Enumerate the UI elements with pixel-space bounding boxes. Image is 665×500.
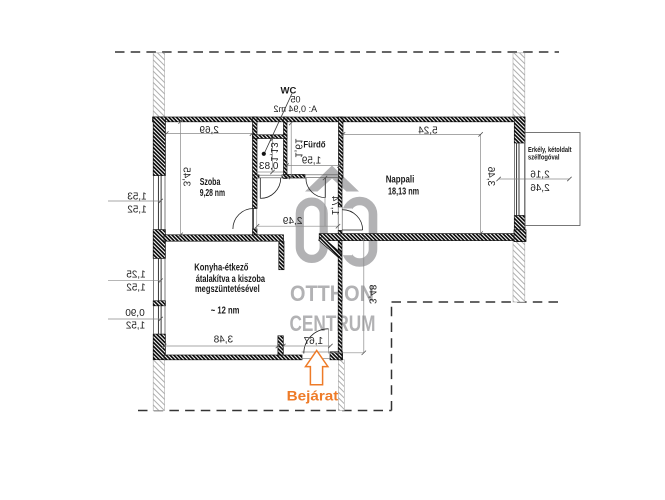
svg-text:1,52: 1,52 [127, 204, 147, 215]
svg-text:1,25: 1,25 [126, 270, 146, 281]
svg-text:3,45: 3,45 [181, 167, 192, 187]
svg-text:0,83: 0,83 [259, 161, 279, 172]
svg-text:2,49: 2,49 [282, 216, 302, 227]
svg-text:~ 12 nm: ~ 12 nm [211, 306, 240, 317]
svg-text:5,24: 5,24 [418, 125, 438, 136]
svg-text:1,61: 1,61 [292, 138, 303, 158]
svg-text:3,46: 3,46 [485, 166, 496, 186]
svg-text:Fürdő: Fürdő [303, 139, 326, 149]
svg-text:1,13: 1,13 [268, 142, 279, 162]
svg-text:Bejárat: Bejárat [287, 389, 339, 404]
svg-text:CENTRUM: CENTRUM [290, 311, 376, 336]
svg-text:1,67: 1,67 [303, 336, 323, 347]
svg-text:1,53: 1,53 [127, 191, 147, 202]
svg-text:3,48: 3,48 [366, 284, 377, 304]
svg-text:szélfogóval: szélfogóval [528, 153, 560, 162]
svg-text:Konyha-étkező: Konyha-étkező [194, 263, 248, 274]
svg-text:3,48: 3,48 [213, 334, 233, 345]
svg-text:0,90: 0,90 [125, 308, 145, 319]
svg-text:Szoba: Szoba [200, 177, 221, 188]
svg-text:1,74: 1,74 [329, 195, 340, 215]
svg-text:1,52: 1,52 [126, 282, 146, 293]
svg-text:2,16: 2,16 [530, 169, 550, 180]
svg-text:2,69: 2,69 [199, 125, 219, 136]
svg-text:OTTHON: OTTHON [290, 281, 374, 306]
svg-text:A: 0,94 m2: A: 0,94 m2 [274, 104, 318, 114]
svg-text:9,28 nm: 9,28 nm [200, 188, 226, 199]
svg-text:2,46: 2,46 [530, 183, 550, 194]
svg-text:megszüntetésével: megszüntetésével [195, 284, 260, 295]
svg-text:05: 05 [290, 95, 300, 105]
svg-text:Nappali: Nappali [386, 175, 415, 186]
svg-text:1,59: 1,59 [301, 156, 321, 167]
svg-text:18,13 nm: 18,13 nm [388, 186, 419, 197]
svg-text:1,52: 1,52 [125, 321, 145, 332]
